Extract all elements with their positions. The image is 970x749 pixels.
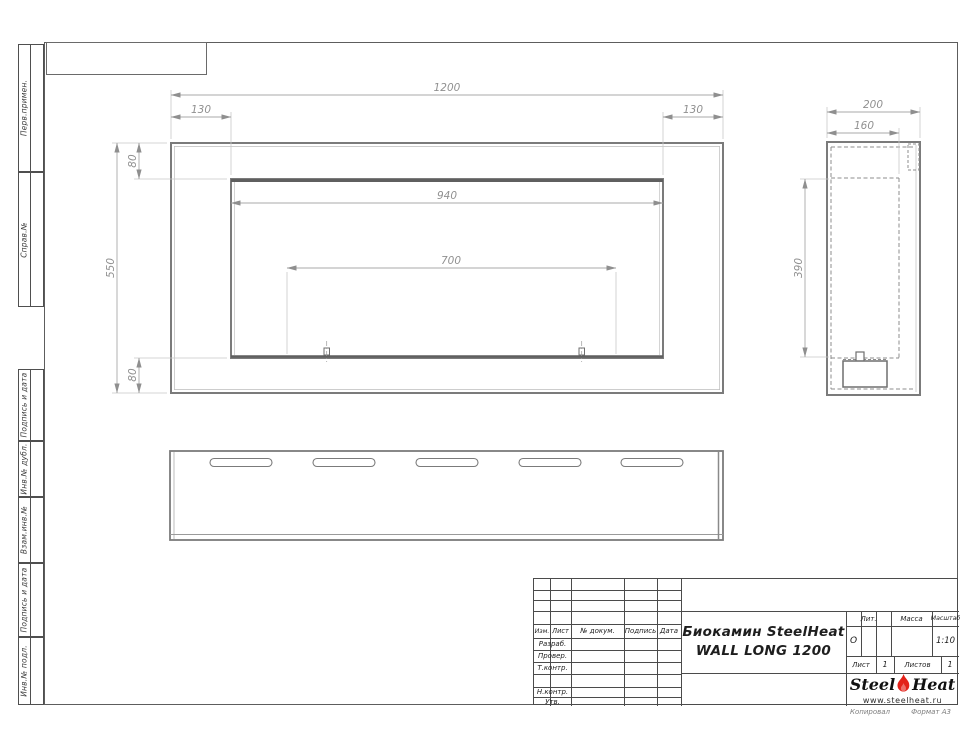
document-title-line2: WALL LONG 1200 xyxy=(696,642,831,661)
tb-row-prover: Провер. xyxy=(534,650,571,662)
document-title: Биокамин SteelHeat WALL LONG 1200 xyxy=(681,611,846,673)
front-opening-outline xyxy=(231,179,663,358)
tb-sheet-label: Лист xyxy=(846,656,876,673)
tb-liter-value: О xyxy=(846,626,861,656)
tb-row-tkontr: Т.контр. xyxy=(534,662,571,674)
burner-block xyxy=(843,361,887,387)
dim-front-left-offset: 130 xyxy=(191,104,211,116)
side-outer-outline xyxy=(827,142,920,395)
tb-sheet-value: 1 xyxy=(876,656,894,673)
company-logo: Steel Heat www.steelheat.ru xyxy=(846,673,959,706)
side-view xyxy=(827,142,920,395)
dim-front-opening-width: 940 xyxy=(437,190,457,202)
tb-mass-label: Масса xyxy=(891,611,932,626)
tb-row-utv: Утв. xyxy=(534,697,571,706)
tb-sheets-label: Листов xyxy=(894,656,941,673)
dim-front-right-offset: 130 xyxy=(683,104,703,116)
tb-row-nkontr: Н.контр. xyxy=(534,687,571,697)
logo-steel-text: Steel xyxy=(850,677,895,693)
dim-side-inner-depth: 160 xyxy=(854,120,874,132)
format-note: Формат А3 xyxy=(901,708,961,716)
dim-front-height: 550 xyxy=(105,258,117,278)
logo-heat-text: Heat xyxy=(912,677,955,693)
dim-front-inner-span: 700 xyxy=(441,255,461,267)
tb-col-list: Лист xyxy=(550,624,571,638)
dim-side-depth: 200 xyxy=(863,99,883,111)
dim-front-top-offset: 80 xyxy=(127,154,139,168)
tb-lit-label: Лит. xyxy=(846,611,891,626)
tb-col-docnum: № докум. xyxy=(571,624,624,638)
dim-front-bottom-offset: 80 xyxy=(127,368,139,382)
tb-row-razrab: Разраб. xyxy=(534,638,571,650)
title-block: Изм. Лист № докум. Подпись Дата Разраб. … xyxy=(533,578,958,705)
flame-icon xyxy=(896,674,911,693)
dim-side-inner-height: 390 xyxy=(793,258,805,278)
document-title-line1: Биокамин SteelHeat xyxy=(682,623,844,642)
dim-front-width: 1200 xyxy=(434,82,461,94)
tb-col-podpis: Подпись xyxy=(624,624,657,638)
tb-scale-value: 1:10 xyxy=(932,626,959,656)
bottom-view xyxy=(170,451,723,540)
tb-col-izm: Изм. xyxy=(534,624,550,638)
tb-col-data: Дата xyxy=(657,624,681,638)
drawing-sheet: Перв.примен. Справ.№ Подпись и дата Инв.… xyxy=(0,0,970,749)
kopiroval-note: Копировал xyxy=(840,708,900,716)
logo-website: www.steelheat.ru xyxy=(863,696,942,705)
tb-sheets-value: 1 xyxy=(941,656,959,673)
burner-tab xyxy=(856,352,864,362)
tb-scale-label: Масштаб xyxy=(932,611,959,626)
